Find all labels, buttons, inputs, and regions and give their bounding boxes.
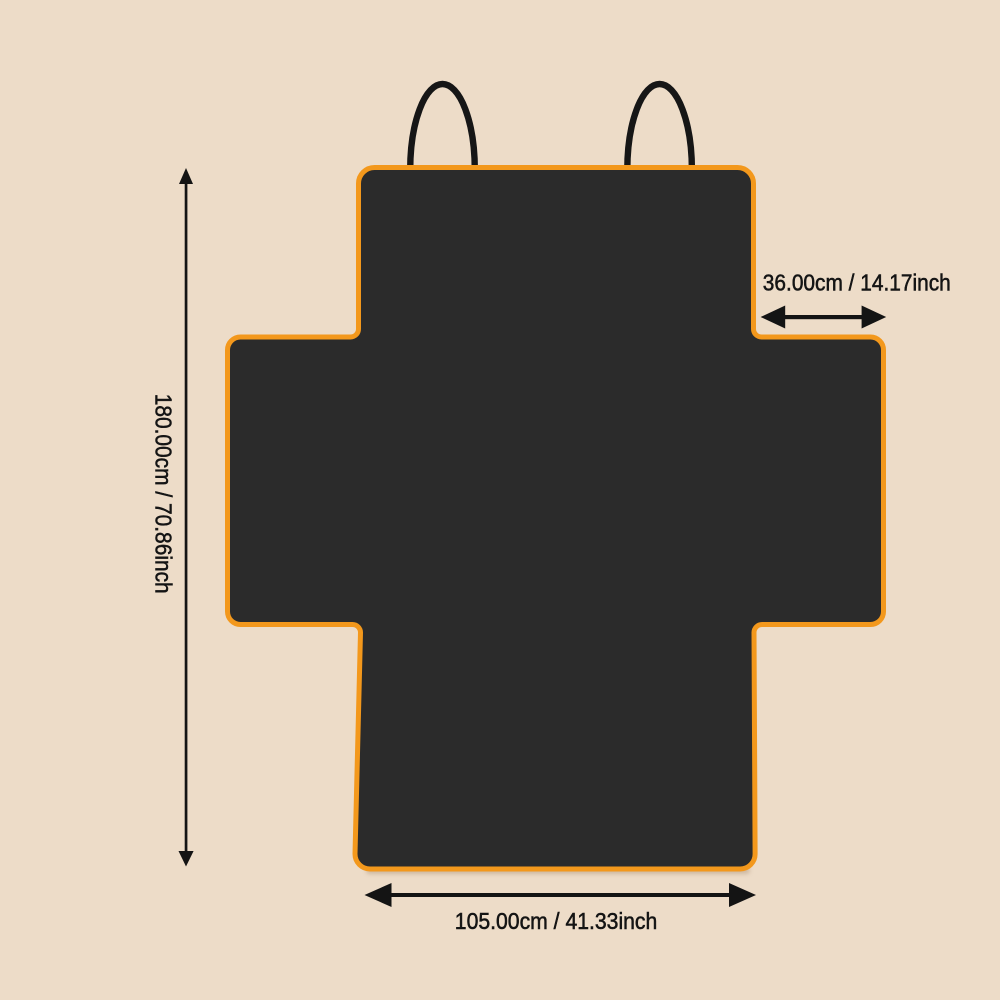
svg-text:180.00cm / 70.86inch: 180.00cm / 70.86inch: [151, 394, 177, 594]
svg-text:36.00cm / 14.17inch: 36.00cm / 14.17inch: [763, 270, 951, 296]
svg-text:105.00cm / 41.33inch: 105.00cm / 41.33inch: [455, 908, 658, 934]
